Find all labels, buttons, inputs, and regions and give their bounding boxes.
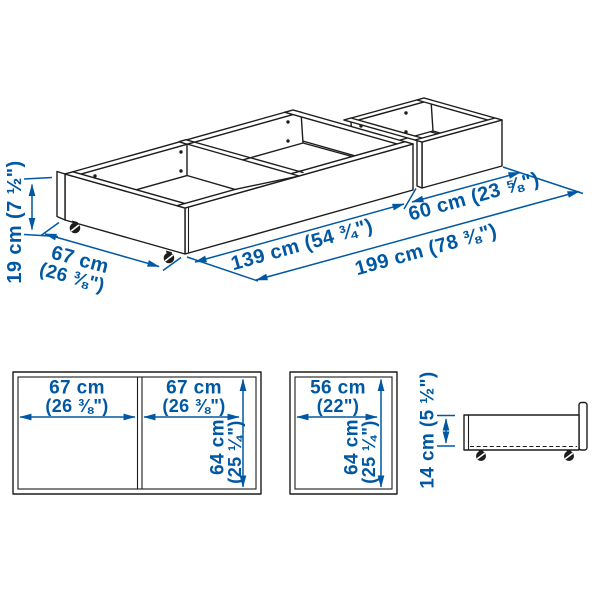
depth-label-line2: (25 ¼") (359, 420, 379, 483)
total-length-dimension-label: 199 cm (78 ⅜") (353, 220, 500, 280)
left-width-label-line2: (26 ⅜") (45, 396, 108, 416)
width-label-line2: (22") (317, 396, 360, 416)
second-box-end-sliver (417, 140, 422, 188)
depth-label-line2: (25 ¼") (225, 420, 245, 483)
side-view: 14 cm (5 ½") (418, 371, 588, 488)
caster-wheel-icon (564, 450, 574, 461)
screw-hole-dot (179, 150, 182, 153)
caster-wheel-icon (164, 251, 175, 264)
bed-attachment-flange (579, 403, 587, 451)
side-view-body (464, 415, 579, 450)
top-view-small-box: 56 cm (22") 64 cm (25 ¼") (290, 372, 397, 494)
extension-line (41, 223, 59, 236)
screw-hole-dot (286, 120, 289, 123)
product-dimension-diagram: 19 cm (7 ½") 67 cm (26 ⅜") 139 cm (54 ¾"… (0, 0, 600, 600)
height-dimension-label: 19 cm (7 ½") (4, 160, 26, 283)
iso-drawing: 19 cm (7 ½") 67 cm (26 ⅜") 139 cm (54 ¾"… (4, 98, 583, 297)
top-view-large-box: 67 cm (26 ⅜") 67 cm (26 ⅜") 64 cm (25 ¼"… (13, 372, 261, 494)
main-box-end-sliver (57, 172, 65, 221)
screw-hole-dot (286, 139, 289, 142)
extension-line (24, 178, 52, 180)
side-height-label: 14 cm (5 ½") (418, 371, 439, 488)
screw-hole-dot (179, 169, 182, 172)
caster-wheel-icon (476, 450, 486, 461)
right-width-label-line2: (26 ⅜") (162, 396, 225, 416)
diagram-canvas: 19 cm (7 ½") 67 cm (26 ⅜") 139 cm (54 ¾"… (0, 0, 600, 600)
screw-hole-dot (404, 111, 407, 114)
